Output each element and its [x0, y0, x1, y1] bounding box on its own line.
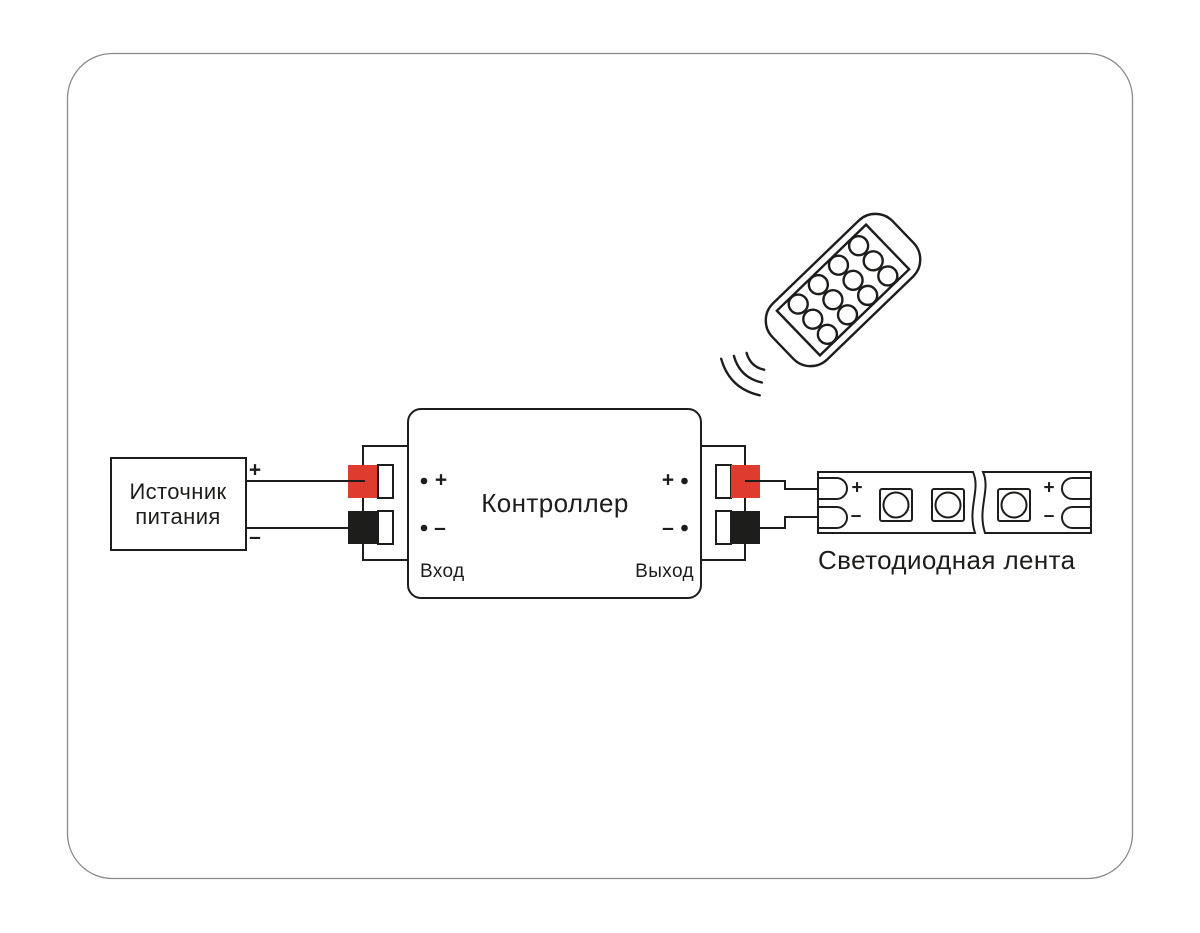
terminal-clamp [378, 465, 393, 498]
power-plus-label: + [249, 459, 261, 482]
controller-input-plus-label: + [435, 469, 447, 492]
power-supply-label-line1: Источник [129, 479, 226, 504]
terminal-dot [421, 525, 428, 532]
remote-control-icon [756, 204, 930, 376]
solder-pad [818, 478, 847, 499]
led-strip-left-minus-label: – [851, 506, 862, 527]
controller-input-minus-label: – [434, 517, 446, 540]
led-strip-left-plus-label: + [851, 478, 862, 499]
controller-output-label: Выход [635, 561, 694, 582]
controller-label: Контроллер [481, 488, 628, 518]
terminal-dot [421, 478, 428, 485]
signal-arc [734, 356, 762, 383]
led-strip-label: Светодиодная лента [818, 545, 1076, 575]
led-strip-right-plus-label: + [1043, 478, 1054, 499]
controller-output-minus-label: – [662, 517, 674, 540]
controller-output-plus-label: + [662, 469, 674, 492]
signal-arc [747, 353, 765, 370]
wireless-signal-icon [721, 353, 764, 395]
led-strip-right-minus-label: – [1044, 506, 1055, 527]
terminal-dot [681, 525, 688, 532]
terminal-clamp [716, 511, 731, 544]
solder-pad [1062, 478, 1091, 499]
wiring-diagram: Источник питания + – Контроллер Вход Вых… [0, 0, 1200, 933]
solder-pad [1062, 507, 1091, 528]
terminal-clamp [716, 465, 731, 498]
terminal-dot [681, 478, 688, 485]
solder-pad [818, 507, 847, 528]
terminal-clamp [378, 511, 393, 544]
power-supply-label-line2: питания [135, 504, 220, 529]
controller-input-label: Вход [420, 561, 465, 582]
